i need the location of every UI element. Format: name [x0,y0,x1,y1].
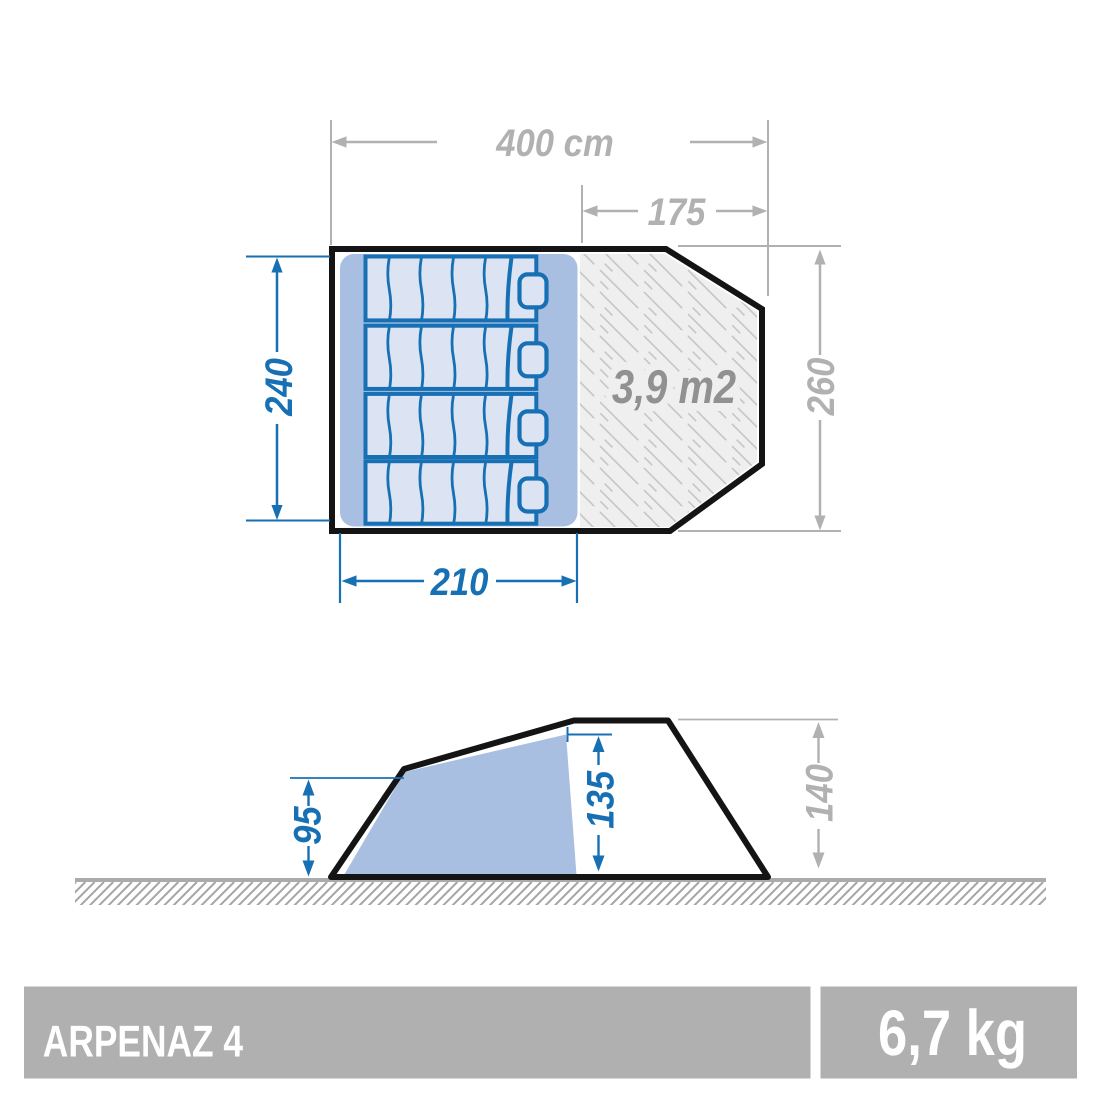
svg-text:ARPENAZ 4: ARPENAZ 4 [43,1017,243,1066]
svg-text:400 cm: 400 cm [495,122,613,165]
svg-text:3,9 m2: 3,9 m2 [612,361,736,414]
svg-text:6,7 kg: 6,7 kg [878,997,1027,1069]
svg-text:95: 95 [286,806,329,845]
svg-text:135: 135 [579,770,622,828]
svg-text:240: 240 [258,358,301,417]
svg-text:210: 210 [430,561,489,604]
svg-text:260: 260 [800,357,843,416]
svg-text:175: 175 [648,191,706,234]
svg-text:140: 140 [798,764,841,822]
